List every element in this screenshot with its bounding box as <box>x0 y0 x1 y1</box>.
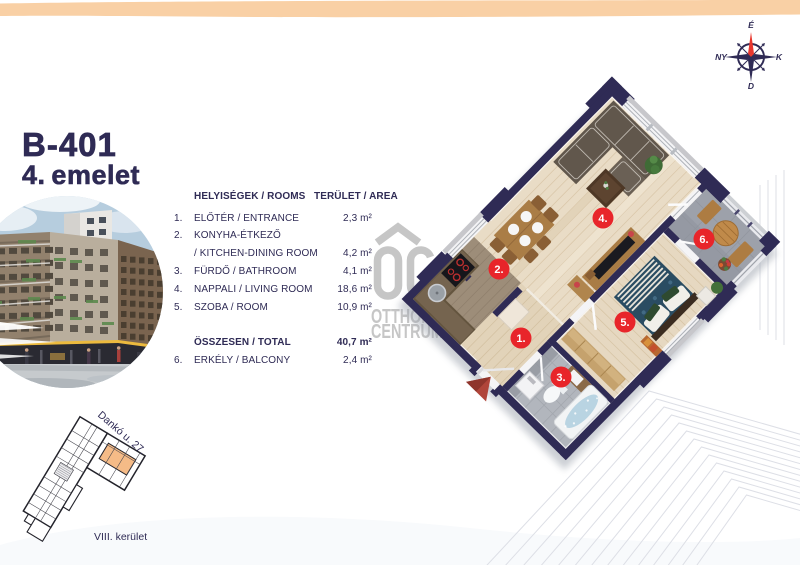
svg-text:5.: 5. <box>620 317 629 329</box>
svg-text:2.: 2. <box>494 264 503 276</box>
svg-text:3.: 3. <box>556 372 565 384</box>
svg-text:NY: NY <box>715 52 728 62</box>
svg-text:D: D <box>748 81 754 91</box>
svg-text:1.: 1. <box>516 333 525 345</box>
svg-text:K: K <box>776 52 783 62</box>
svg-text:6.: 6. <box>699 234 708 246</box>
svg-text:4.: 4. <box>598 213 607 225</box>
svg-text:É: É <box>748 20 754 30</box>
